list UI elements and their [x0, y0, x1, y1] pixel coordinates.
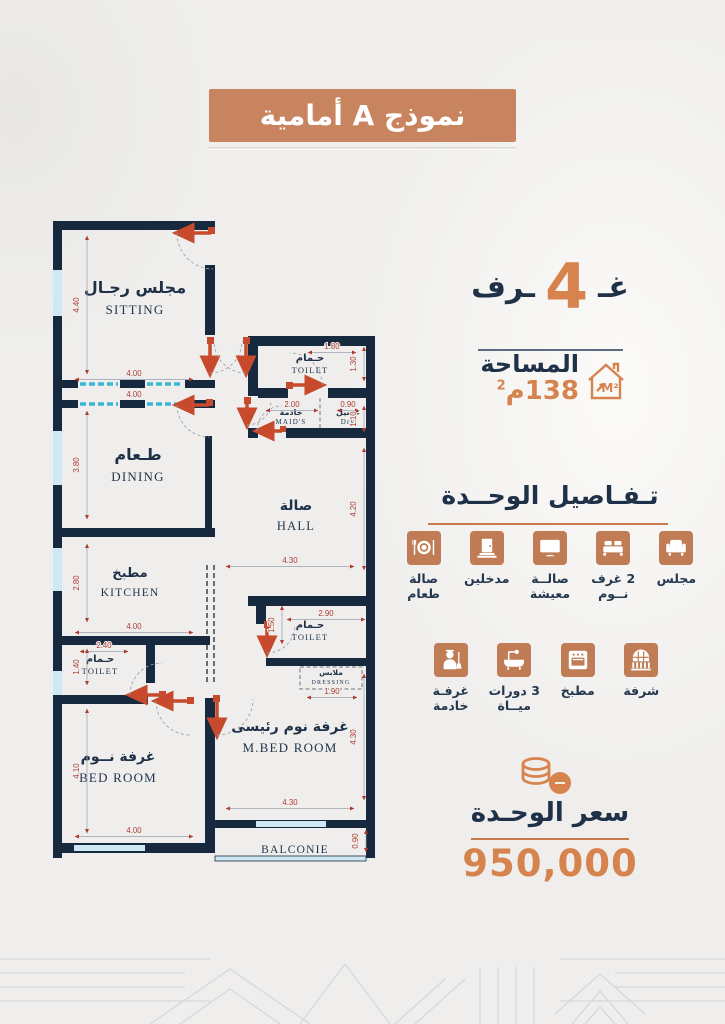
dimension-label: 1.30 [349, 356, 358, 372]
area-label: المساحة [425, 352, 579, 377]
room-label-en: TOILET [292, 365, 329, 375]
details-title: تـفـاصيل الوحــدة [420, 481, 680, 510]
maid-icon [434, 643, 468, 677]
room-label-ar: طـعام [114, 445, 161, 464]
area-superscript: 2 [497, 379, 506, 394]
dimension-label: 4.00 [126, 622, 142, 631]
detail-item: غرفـةخادمة [419, 643, 483, 713]
area-block: المساحة 138م2 M² [425, 352, 627, 407]
coins-icon [512, 755, 582, 799]
dimension-label: 4.30 [349, 729, 358, 745]
dimension-label: 1.10 [349, 411, 358, 427]
detail-item-label: شرفة [623, 683, 659, 698]
dimension-label: 1.90 [324, 687, 340, 696]
rooms-count-number: 4 [545, 256, 588, 318]
detail-item-label: صالــةمعيشة [530, 571, 570, 601]
detail-item: مطبخ [546, 643, 610, 713]
area-text: المساحة 138م2 [425, 352, 585, 407]
oven-icon [561, 643, 595, 677]
sofa-icon [659, 531, 693, 565]
details-row-2: شرفةمطبخ3 دوراتميــاةغرفـةخادمة [419, 643, 673, 713]
dimension-label: 3.80 [72, 457, 81, 473]
room-label-en: MAID'S [275, 418, 306, 426]
dimension-label: 4.00 [126, 390, 142, 399]
room-label-ar: غرفة نوم رئيسى [231, 719, 348, 735]
room-label-ar: ملابس [319, 668, 343, 677]
dimension-label: 4.30 [282, 798, 298, 807]
bed-icon [596, 531, 630, 565]
room-label-en: HALL [277, 519, 315, 533]
dimension-label: 1.80 [324, 342, 340, 351]
dimension-label: 0.90 [351, 833, 360, 849]
detail-item-label: صالةطعام [407, 571, 440, 601]
dimension-label: 4.10 [72, 763, 81, 779]
rooms-count-block: غـ 4 ـرف [440, 256, 660, 318]
room-label-en: BED ROOM [79, 770, 157, 785]
dimension-label: 4.00 [126, 369, 142, 378]
dining-icon [407, 531, 441, 565]
plan-labels: مجلس رجـالSITTINGطـعامDININGمطبخKITCHENص… [72, 236, 366, 856]
house-icon-m2-text: M² [601, 381, 618, 395]
dimension-label: 4.30 [282, 556, 298, 565]
room-label-ar: حـمام [296, 353, 324, 364]
dimension-label: 4.40 [72, 297, 81, 313]
room-label-ar: غرفة نــوم [81, 749, 156, 765]
detail-item-label: مدخلين [464, 571, 509, 586]
rooms-word-prefix: غـ [598, 270, 629, 305]
room-label-ar: مجلس رجـال [84, 278, 186, 297]
room-label-en: DRESSING [312, 680, 351, 686]
banner-divider [209, 147, 516, 150]
details-title-underline [428, 523, 668, 525]
floor-plan: مجلس رجـالSITTINGطـعامDININGمطبخKITCHENص… [38, 193, 398, 883]
room-label-en: SITTING [106, 302, 165, 317]
tv-icon [533, 531, 567, 565]
room-label-ar: صالة [280, 498, 313, 514]
detail-item: شرفة [610, 643, 674, 713]
dimension-label: 2.00 [284, 400, 300, 409]
detail-item: 2 غرفنــوم [582, 531, 645, 601]
dimension-label: 1.50 [267, 617, 276, 633]
room-label-ar: مطبخ [112, 566, 147, 581]
detail-item: صالــةمعيشة [518, 531, 581, 601]
details-row-1: مجلس2 غرفنــومصالــةمعيشةمدخلينصالةطعام [392, 531, 708, 601]
detail-item-label: 2 غرفنــوم [591, 571, 635, 601]
detail-item-label: مجلس [657, 571, 697, 586]
room-label-en: TOILET [292, 632, 329, 642]
room-label-ar: خادمة [280, 408, 303, 417]
room-label-en: BALCONIE [261, 844, 329, 856]
dimension-label: 2.40 [96, 641, 112, 650]
bath-icon [497, 643, 531, 677]
detail-item: مجلس [645, 531, 708, 601]
room-label-en: M.BED ROOM [242, 740, 337, 755]
detail-item: 3 دوراتميــاة [483, 643, 547, 713]
room-label-en: KITCHEN [101, 587, 160, 599]
price-underline [471, 838, 629, 840]
dimension-label: 2.80 [72, 575, 81, 591]
detail-item: مدخلين [455, 531, 518, 601]
room-label-en: DINING [111, 469, 164, 484]
price-value: 950,000 [440, 842, 660, 885]
balcony-icon [624, 643, 658, 677]
title-banner: نموذج A أمامية [209, 89, 516, 142]
dimension-label: 4.00 [126, 826, 142, 835]
dimension-label: 4.20 [349, 501, 358, 517]
detail-item-label: 3 دوراتميــاة [489, 683, 540, 713]
area-value: 138م2 [425, 377, 579, 407]
detail-item-label: غرفـةخادمة [433, 683, 469, 713]
dimension-label: 2.90 [318, 609, 334, 618]
house-area-icon: M² [585, 357, 627, 403]
dimension-label: 0.90 [340, 400, 356, 409]
room-label-ar: حـمام [86, 654, 114, 665]
bottom-geometric-pattern [0, 929, 725, 1024]
room-label-ar: حـمام [296, 620, 324, 631]
price-label: سعر الوحـدة [440, 798, 660, 828]
model-title: نموذج A أمامية [260, 99, 466, 132]
area-number: 138م [506, 376, 579, 406]
detail-item: صالةطعام [392, 531, 455, 601]
dimension-label: 1.40 [72, 659, 81, 675]
door-icon [470, 531, 504, 565]
detail-item-label: مطبخ [561, 683, 595, 698]
rooms-word-suffix: ـرف [471, 270, 535, 305]
